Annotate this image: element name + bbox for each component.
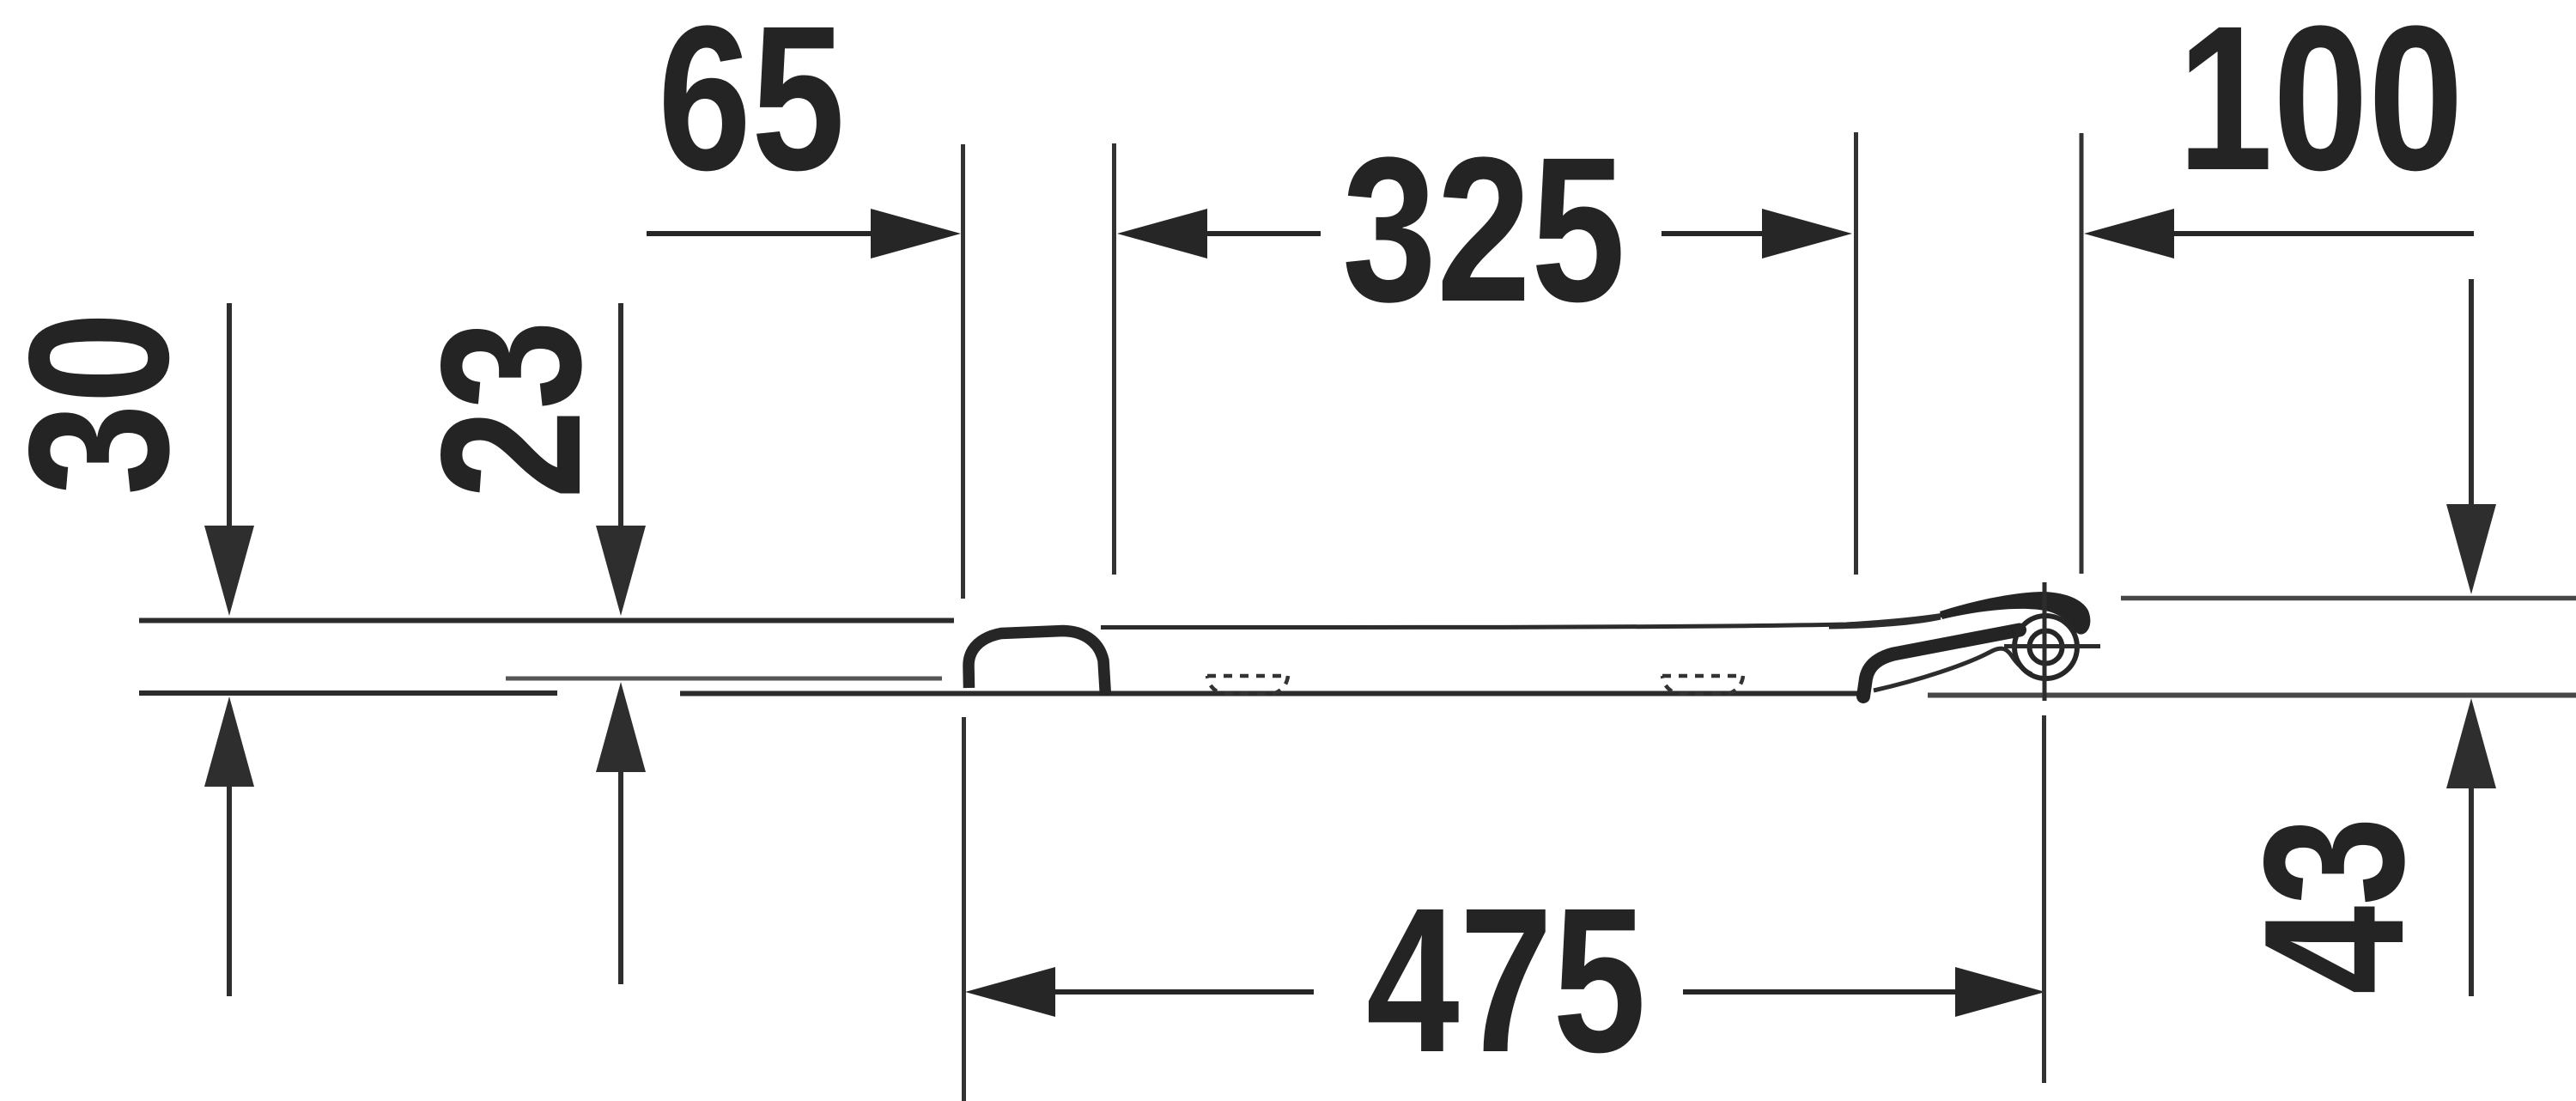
- svg-text:475: 475: [1366, 865, 1646, 1095]
- svg-text:100: 100: [2178, 0, 2464, 213]
- svg-text:325: 325: [1342, 114, 1625, 344]
- svg-text:43: 43: [2223, 817, 2445, 995]
- svg-text:65: 65: [658, 0, 845, 213]
- svg-text:23: 23: [400, 320, 623, 499]
- svg-text:30: 30: [0, 312, 210, 496]
